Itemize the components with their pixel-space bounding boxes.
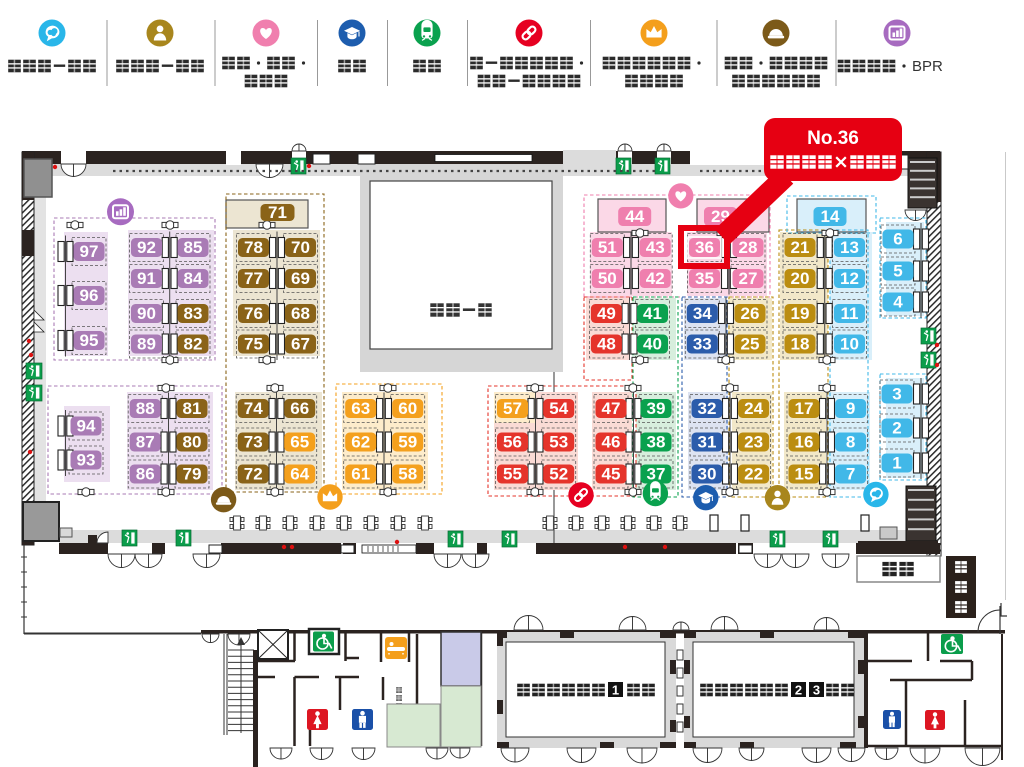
svg-text:74: 74: [244, 399, 263, 418]
svg-text:38: 38: [647, 433, 666, 452]
svg-text:64: 64: [290, 465, 309, 484]
svg-text:36: 36: [695, 238, 714, 257]
svg-text:16: 16: [795, 433, 814, 452]
svg-text:58: 58: [398, 465, 417, 484]
svg-text:75: 75: [244, 335, 263, 354]
svg-text:78: 78: [244, 238, 263, 257]
svg-text:77: 77: [244, 269, 263, 288]
svg-text:44: 44: [625, 207, 644, 226]
svg-text:83: 83: [184, 304, 203, 323]
svg-text:BPR: BPR: [912, 58, 943, 75]
svg-text:82: 82: [184, 335, 203, 354]
svg-text:2: 2: [892, 419, 901, 438]
svg-text:54: 54: [549, 399, 568, 418]
svg-text:39: 39: [647, 399, 666, 418]
svg-text:85: 85: [184, 238, 203, 257]
svg-text:56: 56: [503, 433, 522, 452]
svg-text:90: 90: [137, 304, 156, 323]
svg-text:71: 71: [268, 203, 287, 222]
svg-text:34: 34: [693, 304, 712, 323]
svg-text:59: 59: [398, 433, 417, 452]
svg-text:24: 24: [744, 399, 763, 418]
svg-text:3: 3: [813, 683, 820, 698]
svg-text:23: 23: [744, 433, 763, 452]
svg-text:91: 91: [137, 269, 156, 288]
svg-text:17: 17: [795, 399, 814, 418]
svg-text:5: 5: [893, 262, 902, 281]
svg-text:28: 28: [739, 238, 758, 257]
svg-text:55: 55: [503, 465, 522, 484]
svg-text:52: 52: [549, 465, 568, 484]
svg-text:61: 61: [351, 465, 370, 484]
svg-text:89: 89: [137, 335, 156, 354]
svg-text:25: 25: [741, 335, 760, 354]
svg-text:51: 51: [598, 238, 617, 257]
svg-text:20: 20: [791, 269, 810, 288]
svg-text:35: 35: [695, 269, 714, 288]
svg-text:93: 93: [77, 451, 96, 470]
svg-text:43: 43: [646, 238, 665, 257]
svg-text:62: 62: [351, 433, 370, 452]
svg-text:45: 45: [602, 465, 621, 484]
svg-text:33: 33: [693, 335, 712, 354]
svg-text:4: 4: [893, 293, 903, 312]
svg-text:63: 63: [351, 399, 370, 418]
svg-text:46: 46: [602, 433, 621, 452]
svg-text:27: 27: [739, 269, 758, 288]
svg-text:84: 84: [184, 269, 203, 288]
svg-text:88: 88: [136, 399, 155, 418]
svg-text:31: 31: [698, 433, 717, 452]
svg-text:79: 79: [183, 465, 202, 484]
svg-text:42: 42: [646, 269, 665, 288]
svg-text:2: 2: [795, 683, 802, 698]
svg-text:40: 40: [643, 335, 662, 354]
svg-text:67: 67: [291, 335, 310, 354]
svg-text:13: 13: [840, 238, 859, 257]
svg-text:70: 70: [291, 238, 310, 257]
svg-text:69: 69: [291, 269, 310, 288]
svg-text:48: 48: [597, 335, 616, 354]
svg-text:18: 18: [791, 335, 810, 354]
svg-text:32: 32: [698, 399, 717, 418]
svg-text:94: 94: [77, 417, 96, 436]
svg-text:37: 37: [647, 465, 666, 484]
svg-text:49: 49: [597, 304, 616, 323]
svg-text:No.36: No.36: [807, 128, 859, 149]
svg-text:9: 9: [846, 399, 855, 418]
svg-text:87: 87: [136, 433, 155, 452]
svg-text:76: 76: [244, 304, 263, 323]
svg-text:73: 73: [244, 433, 263, 452]
svg-text:97: 97: [80, 242, 99, 261]
svg-text:68: 68: [291, 304, 310, 323]
svg-text:1: 1: [612, 683, 619, 698]
svg-text:19: 19: [791, 304, 810, 323]
svg-text:26: 26: [741, 304, 760, 323]
svg-text:96: 96: [80, 286, 99, 305]
svg-text:7: 7: [846, 465, 855, 484]
svg-text:81: 81: [183, 399, 202, 418]
svg-text:60: 60: [398, 399, 417, 418]
svg-text:92: 92: [137, 238, 156, 257]
svg-text:12: 12: [840, 269, 859, 288]
svg-text:22: 22: [744, 465, 763, 484]
svg-text:53: 53: [549, 433, 568, 452]
svg-text:21: 21: [791, 238, 810, 257]
svg-text:15: 15: [795, 465, 814, 484]
svg-text:8: 8: [846, 433, 855, 452]
svg-text:72: 72: [244, 465, 263, 484]
svg-text:30: 30: [698, 465, 717, 484]
svg-text:1: 1: [892, 454, 901, 473]
svg-text:86: 86: [136, 465, 155, 484]
svg-text:47: 47: [602, 399, 621, 418]
svg-text:65: 65: [290, 433, 309, 452]
svg-text:57: 57: [503, 399, 522, 418]
svg-text:3: 3: [892, 385, 901, 404]
svg-text:6: 6: [893, 230, 902, 249]
svg-text:66: 66: [290, 399, 309, 418]
svg-text:11: 11: [841, 304, 859, 323]
svg-text:10: 10: [840, 335, 859, 354]
svg-text:50: 50: [598, 269, 617, 288]
svg-text:80: 80: [183, 433, 202, 452]
svg-text:14: 14: [821, 207, 840, 226]
svg-text:41: 41: [643, 304, 662, 323]
svg-text:95: 95: [80, 331, 99, 350]
